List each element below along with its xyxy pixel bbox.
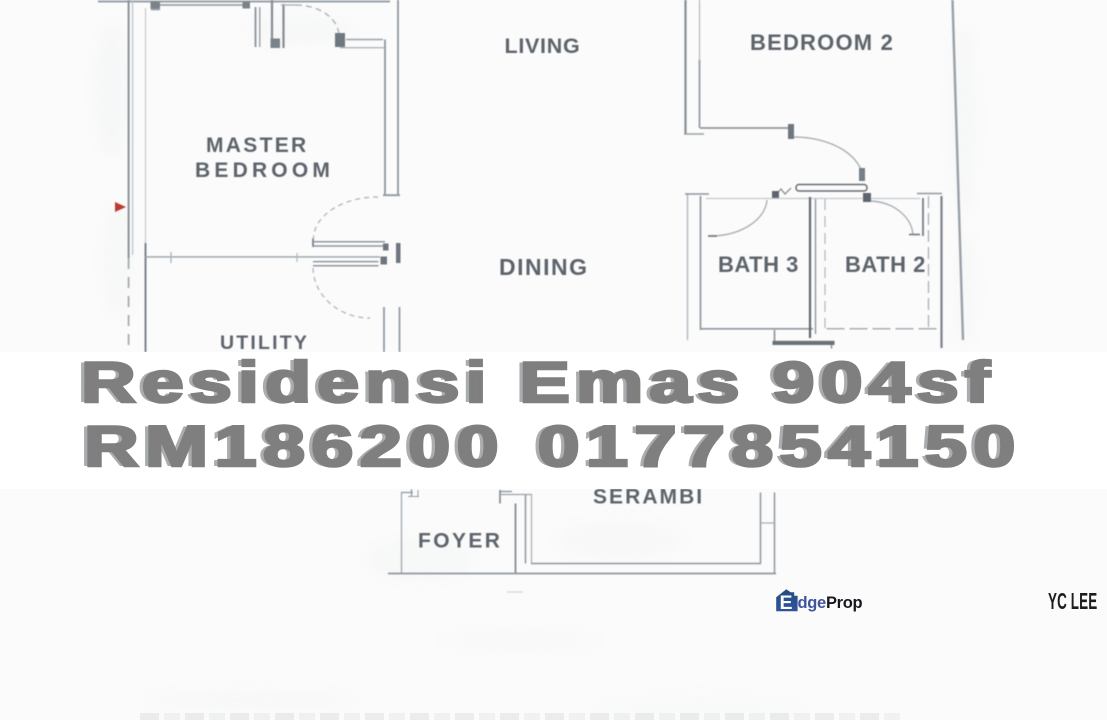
- svg-text:BATH 3: BATH 3: [718, 252, 799, 277]
- svg-text:E: E: [780, 592, 793, 614]
- svg-text:BEDROOM 2: BEDROOM 2: [750, 30, 894, 55]
- svg-text:BATH 2: BATH 2: [845, 252, 926, 277]
- svg-text:MASTER: MASTER: [206, 134, 308, 157]
- svg-text:DINING: DINING: [499, 254, 589, 280]
- svg-text:FOYER: FOYER: [418, 530, 502, 553]
- svg-text:dgeProp: dgeProp: [798, 594, 863, 612]
- svg-text:BEDROOM: BEDROOM: [195, 159, 334, 182]
- svg-text:LIVING: LIVING: [505, 34, 581, 58]
